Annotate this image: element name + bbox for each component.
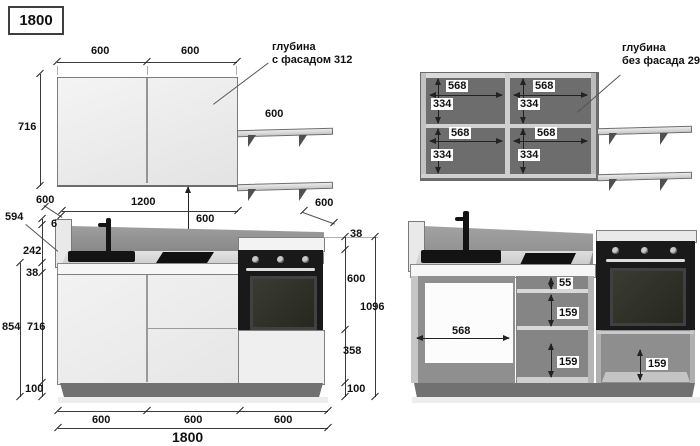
shelf-bracket [299, 135, 307, 147]
dim-label-splash-height: 242 [23, 245, 41, 257]
dim-line [42, 219, 43, 397]
dim-label-top-thickness: 38 [26, 267, 38, 279]
dim-arrow [514, 141, 587, 142]
dim-line [375, 237, 376, 397]
shelf-bracket [248, 135, 256, 147]
oven-window [610, 268, 686, 326]
dim-label-drawer: 159 [557, 356, 579, 368]
shelf-bracket [660, 179, 668, 191]
dim-label-oven-drawer: 159 [646, 358, 668, 370]
sink [421, 250, 501, 263]
note-line: без фасада 296 [622, 55, 700, 68]
drawing-title: 1800 [19, 12, 52, 29]
sink [68, 251, 135, 262]
drawer-front-divider [148, 328, 237, 329]
dim-label-oven-top: 38 [350, 228, 362, 240]
dim-label-inner-width: 568 [533, 80, 555, 92]
dim-label-counter-height: 854 [2, 321, 20, 333]
dim-label-door-width-1: 600 [91, 45, 109, 57]
dim-label-bottom-width: 600 [184, 414, 202, 426]
note-depth-without-facade: глубина без фасада 296 [622, 42, 700, 68]
dim-label-oven-height: 600 [347, 273, 365, 285]
dim-arrow [551, 344, 552, 377]
oven-knob [302, 256, 309, 263]
dim-label-oven-drawer: 358 [343, 345, 361, 357]
dim-label-oven-width: 600 [315, 197, 333, 209]
dim-label-bottom-width: 600 [92, 414, 110, 426]
dim-label-panel-depth: 594 [5, 211, 23, 223]
dim-label-shelf-gap: 334 [431, 98, 453, 110]
carcass-right-panel [591, 73, 596, 178]
dim-label-drawer: 159 [557, 307, 579, 319]
dim-arrow [430, 141, 502, 142]
shelf-bracket [248, 189, 256, 201]
carcass-right-panel [588, 276, 594, 383]
plinth [414, 383, 695, 397]
oven-knob [670, 247, 677, 254]
dim-label-gap: 600 [196, 213, 214, 225]
dim-arrow [514, 95, 587, 96]
plinth [60, 383, 323, 397]
wall-cabinet-door-divider [146, 78, 148, 183]
faucet-spout [98, 223, 108, 227]
shelf-bracket [609, 133, 617, 145]
oven-handle [606, 259, 685, 262]
dim-label-shelf-gap: 334 [518, 149, 540, 161]
dim-arrow [551, 278, 552, 289]
shelf-bracket [609, 179, 617, 191]
oven-knob [277, 256, 284, 263]
oven-knob [252, 256, 259, 263]
dim-arrow [551, 295, 552, 326]
cooktop [156, 252, 214, 263]
floor-shadow [58, 397, 328, 403]
oven-knob [641, 247, 648, 254]
dim-label-door-width-2: 600 [181, 45, 199, 57]
dim-extension [147, 66, 148, 75]
dim-label-wall-height: 716 [18, 121, 36, 133]
dim-arrow [417, 338, 509, 339]
drawing-title-box: 1800 [8, 6, 64, 35]
dim-label-bottom-width: 600 [274, 414, 292, 426]
dim-line [345, 237, 346, 397]
dim-label-oven-plinth: 100 [347, 383, 365, 395]
dim-arrow [640, 350, 641, 380]
dim-label-inner-width: 568 [446, 80, 468, 92]
dim-label-inner-width: 568 [449, 127, 471, 139]
drawer-lip [597, 331, 694, 334]
dim-line [40, 74, 41, 186]
dim-label-plinth-height: 100 [25, 383, 43, 395]
note-depth-with-facade: глубина с фасадом 312 [272, 41, 352, 67]
dim-line [62, 211, 238, 212]
dim-label-top-drawer: 55 [557, 277, 573, 289]
sink-cabinet-opening [425, 283, 513, 363]
dim-label-inner-width: 568 [535, 127, 557, 139]
dim-label-shelf-gap: 334 [518, 98, 540, 110]
shelf-bracket [660, 133, 668, 145]
base-cabinet-fronts [57, 274, 240, 385]
dim-line [303, 212, 335, 225]
drawer-side [690, 330, 695, 383]
oven-handle [246, 268, 315, 271]
note-line: с фасадом 312 [272, 54, 352, 67]
dim-label-opening-width: 568 [450, 325, 472, 337]
dim-label-shelf-gap: 334 [431, 149, 453, 161]
drawer-side [596, 330, 601, 383]
oven-window [250, 276, 317, 330]
shelf-bracket [299, 189, 307, 201]
note-line: глубина [272, 41, 352, 54]
dim-line [58, 411, 328, 412]
dim-label-total-height: 1096 [360, 301, 384, 313]
oven-drawer-front [238, 330, 325, 385]
drawer-floor [602, 372, 690, 382]
dim-arrow [430, 95, 502, 96]
note-line: глубина [622, 42, 700, 55]
dim-extension [236, 66, 237, 75]
carcass-left-panel [411, 276, 418, 383]
oven-knob [612, 247, 619, 254]
kitchen-technical-drawing: 1800 600 600 716 600 глубина с фасадом 3… [0, 0, 700, 446]
dim-label-trim: 6 [51, 218, 57, 230]
faucet-spout [455, 217, 465, 221]
dim-label-total-width: 1800 [172, 431, 203, 443]
floor-shadow [412, 397, 700, 403]
dim-label-top-width-2: 1200 [131, 196, 155, 208]
dim-label-shelf-width: 600 [265, 108, 283, 120]
dim-label-cabinet-height: 716 [27, 321, 45, 333]
dim-extension [57, 66, 58, 75]
